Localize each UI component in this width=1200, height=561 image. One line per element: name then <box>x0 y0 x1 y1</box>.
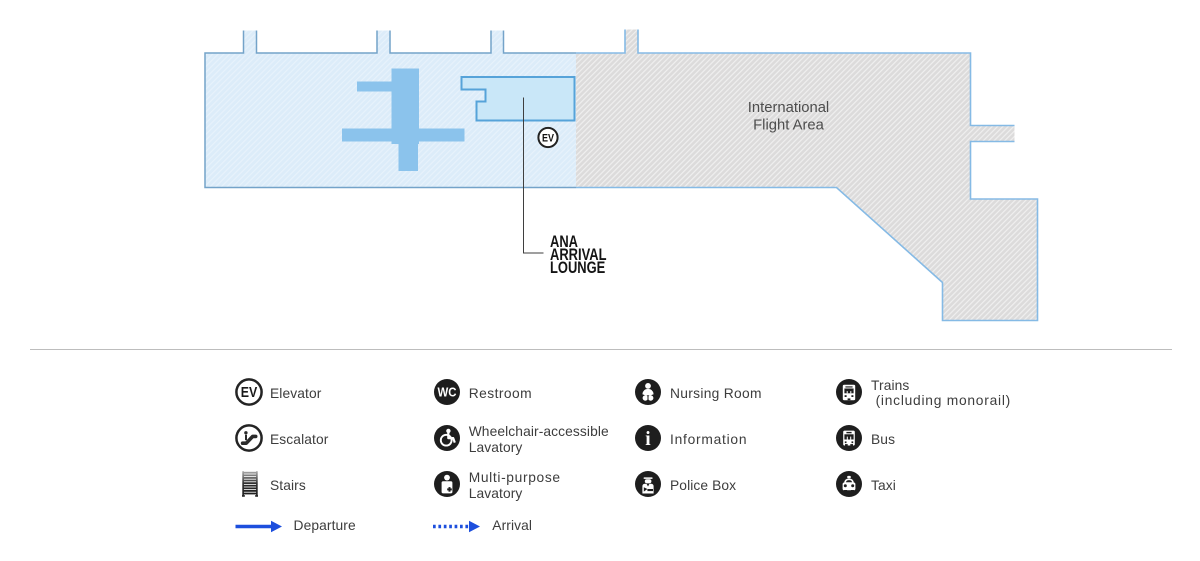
svg-text:i: i <box>645 429 651 450</box>
svg-text:EV: EV <box>542 133 555 145</box>
svg-text:EV: EV <box>240 385 257 401</box>
svg-text:Flight Area: Flight Area <box>753 117 825 133</box>
svg-text:WC: WC <box>437 386 456 400</box>
svg-text:International: International <box>748 100 829 116</box>
